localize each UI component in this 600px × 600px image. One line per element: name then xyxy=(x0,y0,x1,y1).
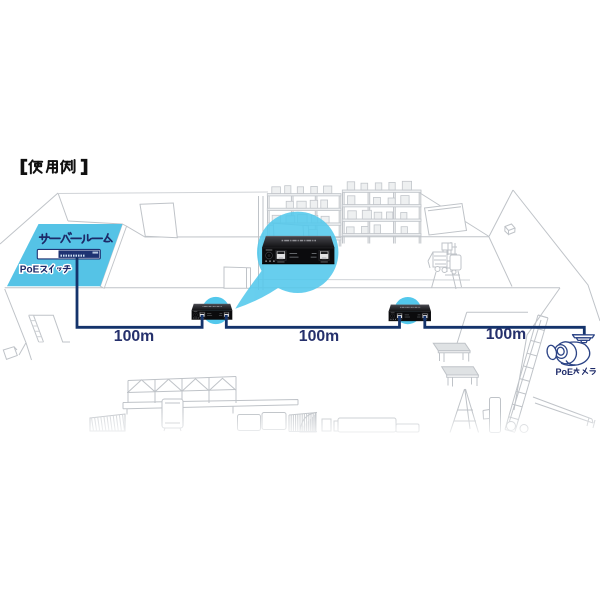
svg-text:PoE: PoE xyxy=(20,265,40,276)
svg-text:100m: 100m xyxy=(486,326,526,343)
svg-text:PoE: PoE xyxy=(556,367,574,377)
svg-text:100m: 100m xyxy=(114,328,154,345)
svg-text:100m: 100m xyxy=(299,328,339,345)
